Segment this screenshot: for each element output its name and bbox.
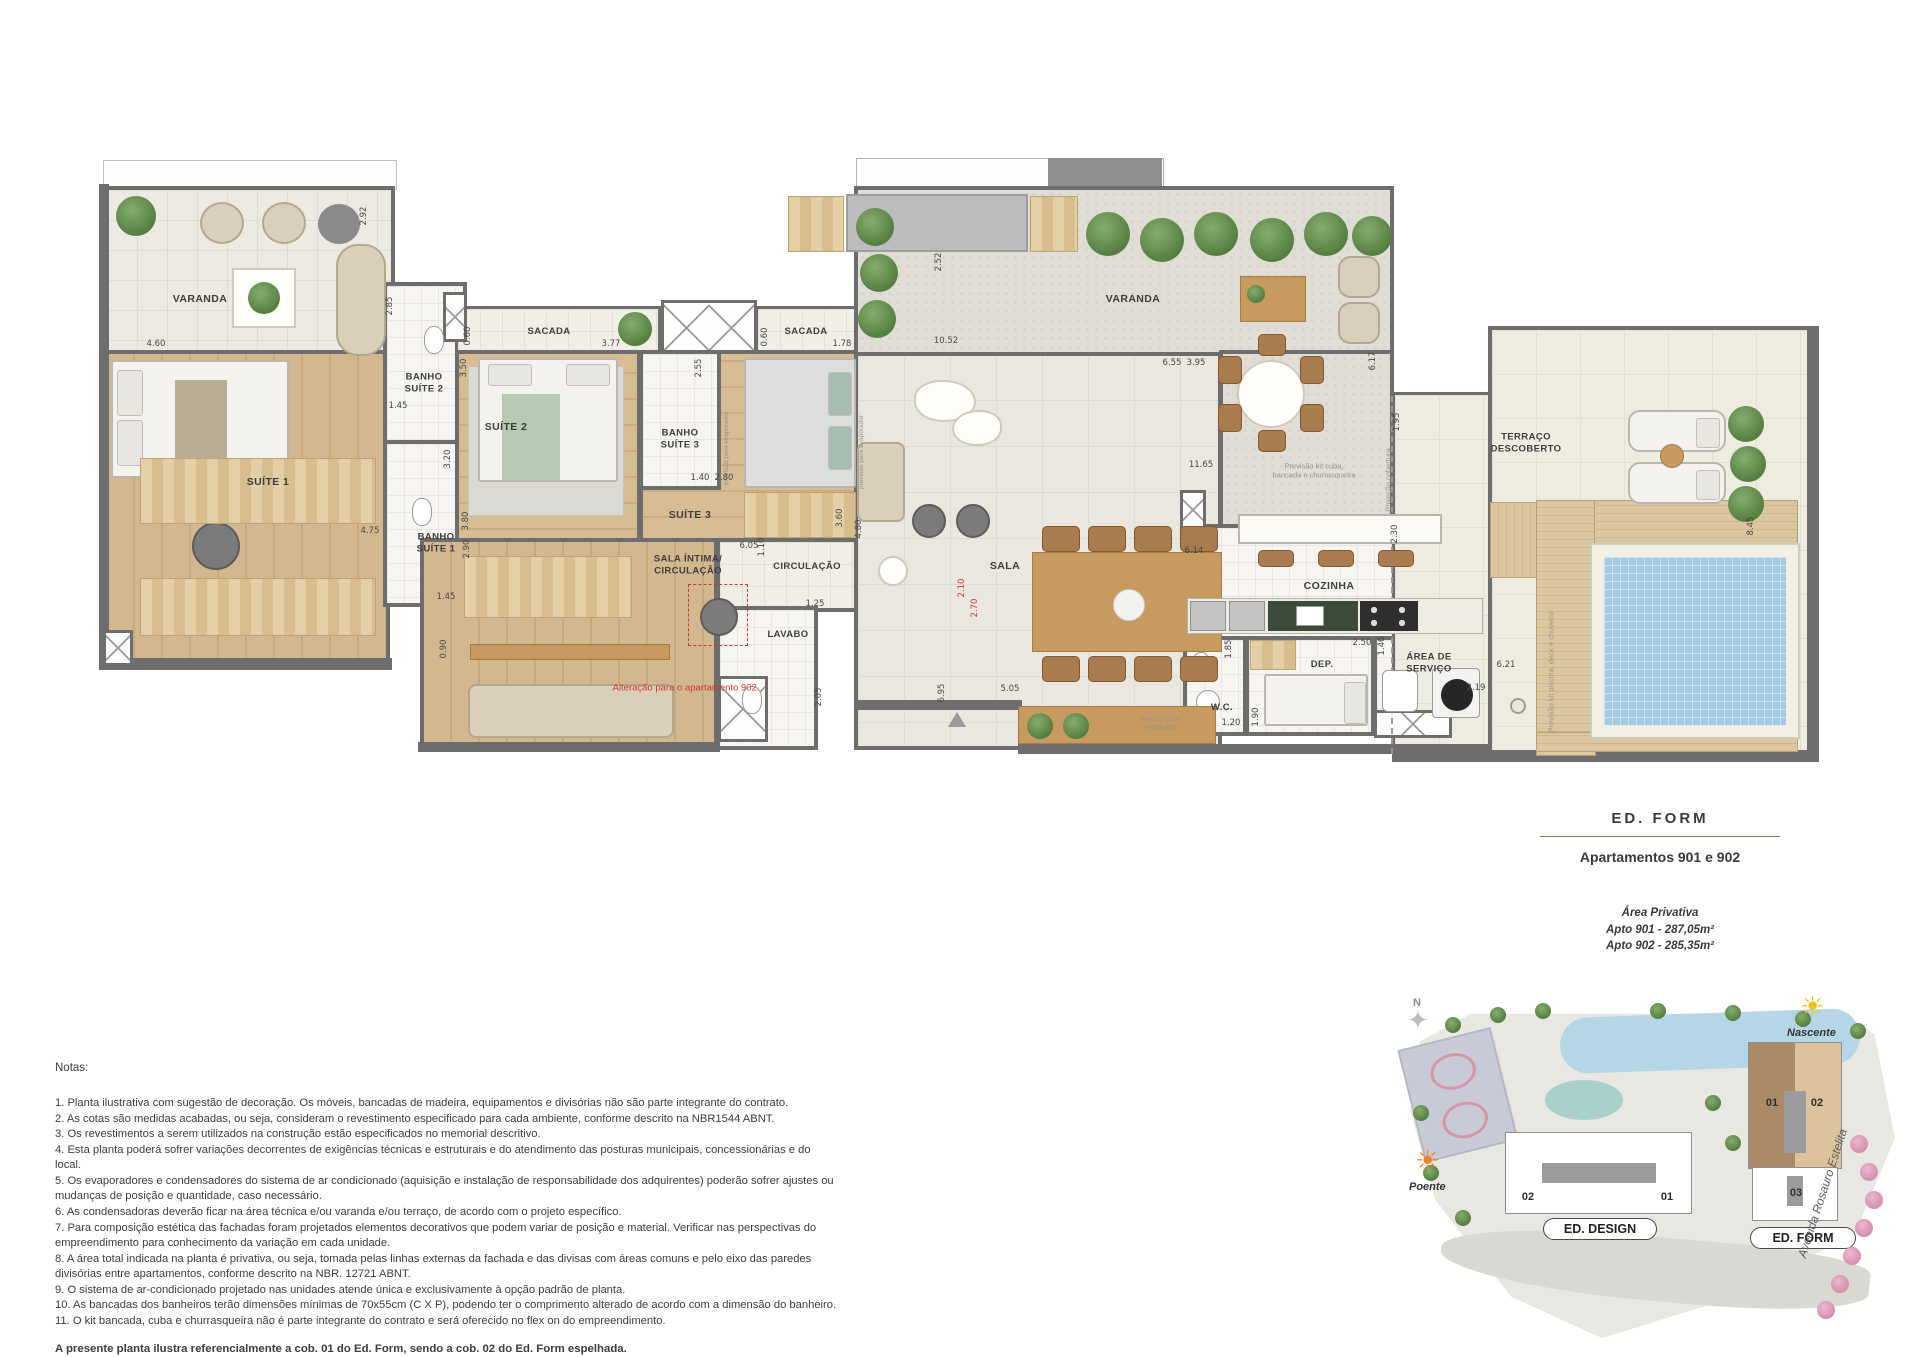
plant-icon: [1086, 212, 1130, 256]
outdoor-chair: [1218, 356, 1242, 384]
pink-tree-icon: [1817, 1301, 1835, 1319]
room-label: VARANDA: [1106, 293, 1161, 307]
plant-icon: [858, 300, 896, 338]
tree-icon: [1445, 1017, 1461, 1033]
pillow: [1696, 418, 1720, 448]
plant-icon: [856, 208, 894, 246]
dimension: 0.90: [439, 640, 449, 659]
pillow: [488, 364, 532, 386]
fridge: [1190, 601, 1226, 631]
room-label: SUÍTE 1: [247, 476, 289, 490]
dimension: 4.60: [147, 339, 166, 349]
bed-suite2: [478, 358, 618, 482]
tree-icon: [1455, 1210, 1471, 1226]
wardrobe: [1250, 640, 1296, 670]
dimension: 6.95: [937, 684, 947, 703]
armchair: [200, 202, 244, 244]
dining-chair: [1088, 656, 1126, 682]
dining-chair: [1042, 526, 1080, 552]
note-item: 10. As bancadas dos banheiros terão dime…: [55, 1298, 837, 1314]
unit-number: 01: [1661, 1191, 1673, 1203]
stove: [1360, 601, 1418, 631]
room-label: BANHO SUÍTE 1: [417, 532, 456, 557]
building-core: [1542, 1163, 1656, 1183]
site-map: 02 01 ED. DESIGN 01 02 03 ED. FORM N ✦ ☀…: [1395, 975, 1920, 1357]
plant-icon: [1730, 446, 1766, 482]
page: { "plan": { "rooms": { "varanda_left": "…: [0, 0, 1920, 1357]
sun-lounger: [1628, 462, 1726, 504]
pool: [1604, 557, 1786, 725]
toilet-icon: [424, 326, 444, 354]
dimension: 2.55: [694, 359, 704, 378]
pillow: [1344, 682, 1366, 724]
note-item: 11. O kit bancada, cuba e churrasqueira …: [55, 1314, 837, 1330]
fridge: [1229, 601, 1265, 631]
notes-section: Notas: 1. Planta ilustrativa com sugestã…: [55, 1062, 837, 1355]
dimension: 4.80: [854, 520, 864, 539]
poente-sun-icon: ☀: [1415, 1147, 1440, 1175]
note-item: 4. Esta planta poderá sofrer variações d…: [55, 1143, 837, 1174]
dimension: 1.45: [437, 592, 456, 602]
wall: [418, 742, 720, 752]
floor-plan: VARANDA SUÍTE 1 BANHO SUÍTE 2 BANHO SUÍT…: [0, 0, 1920, 780]
note-item: 2. As cotas são medidas acabadas, ou sej…: [55, 1112, 837, 1128]
dining-chair: [1180, 656, 1218, 682]
room-label: BANHO SUÍTE 2: [405, 372, 444, 397]
pink-tree-icon: [1860, 1163, 1878, 1181]
pillow: [566, 364, 610, 386]
compass-icon: ✦: [1407, 1005, 1429, 1036]
plant-icon: [1250, 218, 1294, 262]
court-marking: [1439, 1097, 1492, 1143]
reading-chair: [192, 522, 240, 570]
blanket: [175, 380, 227, 462]
ed-design-label: ED. DESIGN: [1543, 1218, 1657, 1240]
dimension: 4.75: [361, 526, 380, 536]
tree-icon: [1535, 1003, 1551, 1019]
dimension: 6.21: [1497, 660, 1516, 670]
plant-icon: [860, 254, 898, 292]
tv-sideboard: [470, 644, 670, 660]
annotation: Previsão kit piscina, deck e chuveiro: [1546, 612, 1555, 733]
outdoor-chair: [1258, 430, 1286, 452]
room-label: SALA ÍNTIMA/ CIRCULAÇÃO: [654, 554, 722, 579]
wicker-lounge-chair: [1338, 256, 1380, 298]
unit-number: 01: [1766, 1097, 1778, 1109]
tree-icon: [1490, 1007, 1506, 1023]
dimension: 2.52: [934, 253, 944, 272]
dimension: 6.55: [1163, 358, 1182, 368]
dining-chair: [1134, 526, 1172, 552]
side-table: [878, 556, 908, 586]
desk-chair: [700, 598, 738, 636]
plant-icon: [1027, 713, 1053, 739]
annotation: Previsão kit cuba, bancada e churrasquei…: [1273, 462, 1356, 481]
nascente-sun-icon: ☀: [1800, 993, 1825, 1021]
wicker-armchair: [912, 504, 946, 538]
wood-mat: [140, 578, 376, 636]
kitchen-sink: [1296, 606, 1324, 626]
pillow: [117, 370, 143, 416]
centerpiece: [1113, 589, 1145, 621]
bed-dep: [1264, 674, 1368, 726]
planter-box: [1018, 706, 1216, 744]
wall: [99, 658, 392, 670]
room-label: SACADA: [784, 326, 827, 338]
dimension: 6.14: [1185, 546, 1204, 556]
building-core: [1784, 1091, 1806, 1153]
dimension: 5.05: [1001, 684, 1020, 694]
title-block: ED. FORM Apartamentos 901 e 902 Área Pri…: [1540, 810, 1780, 955]
entry-arrow-icon: [948, 712, 966, 727]
note-item: 1. Planta ilustrativa com sugestão de de…: [55, 1096, 837, 1112]
dimension: 3.20: [443, 450, 453, 469]
red-annotation: Alteração para o apartamento 902.: [613, 683, 760, 694]
blanket: [502, 394, 560, 480]
wood-mat: [140, 458, 376, 524]
plant-icon: [618, 312, 652, 346]
private-area-block: Área Privativa Apto 901 - 287,05m² Apto …: [1540, 905, 1780, 955]
pink-tree-icon: [1843, 1247, 1861, 1265]
dimension: 2.92: [359, 207, 369, 226]
stool: [1378, 550, 1414, 567]
dimension: 0.60: [463, 327, 473, 346]
toilet-icon: [412, 498, 432, 526]
organic-table: [952, 410, 1002, 446]
dimension: 2.85: [385, 297, 395, 316]
note-item: 6. As condensadoras deverão ficar na áre…: [55, 1205, 837, 1221]
plant-icon: [1304, 212, 1348, 256]
dimension: 1.78: [833, 339, 852, 349]
dimension: 2.30: [1390, 525, 1400, 544]
title-divider: [1540, 836, 1780, 837]
dimension: 3.95: [1187, 358, 1206, 368]
dimension: 1.10: [757, 538, 767, 557]
room-label: BANHO SUÍTE 3: [661, 428, 700, 453]
annotation: previsão para evaporador: [1140, 716, 1179, 732]
dimension: 8.45: [1746, 517, 1756, 536]
dimension: 1.85: [1224, 640, 1234, 659]
armchair: [262, 202, 306, 244]
unit-number: 02: [1522, 1191, 1534, 1203]
note-item: 5. Os evaporadores e condensadores do si…: [55, 1174, 837, 1205]
dining-chair: [1042, 656, 1080, 682]
dimension: 3.50: [459, 359, 469, 378]
nascente-label: Nascente: [1787, 1027, 1836, 1039]
dimension: 1.95: [1392, 413, 1402, 432]
dimension: 2.05: [814, 688, 824, 707]
dimension: 11.65: [1189, 460, 1213, 470]
dimension: 2.90: [462, 540, 472, 559]
dimension: 1.25: [806, 599, 825, 609]
tree-icon: [1705, 1095, 1721, 1111]
room-label: SALA: [990, 560, 1020, 574]
room-label: SUÍTE 2: [485, 421, 527, 435]
bed-suite3: [744, 358, 856, 488]
tree-icon: [1725, 1135, 1741, 1151]
shaft-hatch: [103, 630, 133, 666]
plant-icon: [1247, 285, 1265, 303]
room-label: W.C.: [1211, 702, 1233, 714]
room-label: LAVABO: [767, 629, 808, 641]
notes-heading: Notas:: [55, 1062, 837, 1074]
room-label: ÁREA DE SERVIÇO: [1406, 652, 1451, 677]
apartments-subtitle: Apartamentos 901 e 902: [1540, 849, 1780, 865]
room-label: SUÍTE 3: [669, 509, 711, 523]
round-dining-table: [1237, 360, 1305, 428]
pink-tree-icon: [1831, 1275, 1849, 1293]
stool: [1258, 550, 1294, 567]
plant-icon: [248, 282, 280, 314]
building-name: ED. FORM: [1540, 810, 1780, 827]
note-item: 7. Para composição estética das fachadas…: [55, 1221, 837, 1252]
deck: [1536, 500, 1596, 756]
dining-chair: [1134, 656, 1172, 682]
note-item: 8. A área total indicada na planta é pri…: [55, 1252, 837, 1283]
pillow: [1696, 470, 1720, 500]
shower-icon: [1510, 698, 1526, 714]
unit-number: 02: [1811, 1097, 1823, 1109]
dimension: 3.77: [602, 339, 621, 349]
room-label: COZINHA: [1304, 580, 1355, 594]
dimension-red: 2.70: [970, 599, 980, 618]
tree-icon: [1850, 1023, 1866, 1039]
dimension: 3.60: [835, 509, 845, 528]
tree-icon: [1725, 1005, 1741, 1021]
wardrobe: [464, 556, 632, 618]
area-heading: Área Privativa: [1540, 905, 1780, 922]
room-label: DEP.: [1311, 659, 1334, 671]
dimension: 2.80: [715, 473, 734, 483]
note-item: 3. Os revestimentos a serem utilizados n…: [55, 1127, 837, 1143]
dimension: 3.80: [461, 512, 471, 531]
room-label: VARANDA: [173, 293, 228, 307]
plant-icon: [1063, 713, 1089, 739]
notes-footer: A presente planta ilustra referencialmen…: [55, 1343, 837, 1355]
dimension: 1.46: [1377, 637, 1387, 656]
dimension: 1.45: [389, 401, 408, 411]
side-table-round: [1660, 444, 1684, 468]
stool: [1318, 550, 1354, 567]
wall: [1807, 326, 1819, 762]
deck-steps: [1490, 502, 1538, 578]
dimension: 2.50: [1353, 638, 1372, 648]
plant-icon: [1728, 406, 1764, 442]
deck: [1594, 500, 1798, 546]
trellis-mat: [788, 196, 844, 252]
dining-chair: [1088, 526, 1126, 552]
court-marking: [1426, 1048, 1479, 1094]
room-label: CIRCULAÇÃO: [773, 561, 841, 573]
outdoor-chair: [1300, 404, 1324, 432]
wicker-lounge-chair: [1338, 302, 1380, 344]
wall: [99, 184, 109, 670]
dimension: 10.52: [934, 336, 958, 346]
area-901: Apto 901 - 287,05m²: [1540, 922, 1780, 939]
site-lagoon: [1545, 1080, 1623, 1120]
dimension: 1.20: [1222, 718, 1241, 728]
dimension: 1.90: [1251, 708, 1261, 727]
outdoor-chair: [1300, 356, 1324, 384]
chaise: [336, 244, 386, 356]
ottoman: [318, 204, 360, 244]
dimension: 6.05: [740, 541, 759, 551]
area-902: Apto 902 - 285,35m²: [1540, 938, 1780, 955]
pillow: [828, 372, 852, 416]
kitchen-island: [1238, 514, 1442, 544]
shaft-hatch: [1180, 490, 1206, 530]
pink-tree-icon: [1855, 1219, 1873, 1237]
wicker-armchair: [956, 504, 990, 538]
plant-icon: [1352, 216, 1392, 256]
room-label: SACADA: [527, 326, 570, 338]
annotation: Projeção cobertura: [1383, 448, 1392, 511]
pink-tree-icon: [1850, 1135, 1868, 1153]
plant-icon: [1140, 218, 1184, 262]
outdoor-console: [1240, 276, 1306, 322]
room-banho-suite3: [639, 350, 721, 490]
pink-tree-icon: [1865, 1191, 1883, 1209]
tree-icon: [1650, 1003, 1666, 1019]
plant-icon: [1194, 212, 1238, 256]
dimension: 1.40: [691, 473, 710, 483]
dimension: 0.60: [760, 328, 770, 347]
dimension: 6.17: [1368, 352, 1378, 371]
plant-icon: [116, 196, 156, 236]
pillow: [828, 426, 852, 470]
dimension: 2.19: [1467, 683, 1486, 693]
tree-icon: [1413, 1105, 1429, 1121]
annotation: previsão para evaporador: [858, 415, 866, 489]
outdoor-chair: [1258, 334, 1286, 356]
shaft-hatch-top: [661, 300, 757, 356]
trellis-mat: [1030, 196, 1078, 252]
outdoor-chair: [1218, 404, 1242, 432]
room-label: TERRAÇO DESCOBERTO: [1491, 432, 1562, 457]
dimension-red: 2.10: [957, 579, 967, 598]
note-item: 9. O sistema de ar-condicionado projetad…: [55, 1283, 837, 1299]
unit-number: 03: [1790, 1187, 1802, 1199]
poente-label: Poente: [1409, 1181, 1446, 1193]
